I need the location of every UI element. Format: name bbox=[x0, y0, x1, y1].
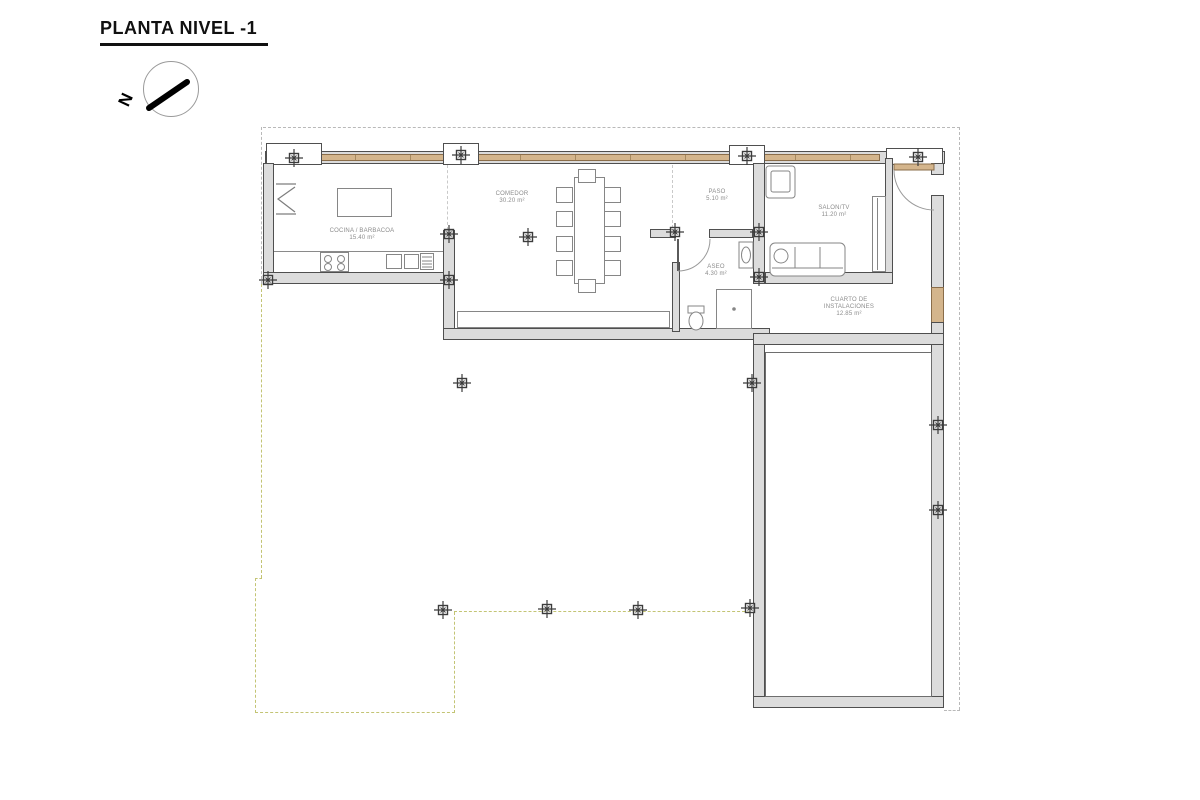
dining-table bbox=[574, 177, 605, 284]
wall-right-upper bbox=[931, 195, 944, 288]
sink bbox=[386, 254, 402, 269]
wall-right-stub bbox=[931, 163, 944, 175]
column-marker bbox=[434, 601, 452, 619]
toilet bbox=[688, 306, 704, 330]
wall-kitchen-comedor bbox=[443, 230, 455, 340]
wing-interior bbox=[765, 352, 932, 697]
kitchen-island bbox=[337, 188, 392, 217]
dining-chair bbox=[604, 187, 621, 203]
room-boundary-dashed bbox=[672, 165, 673, 228]
shower bbox=[716, 289, 752, 329]
dining-chair bbox=[556, 260, 573, 276]
north-letter: N bbox=[114, 90, 137, 110]
wall-paso-salon bbox=[753, 163, 765, 284]
column-marker bbox=[519, 228, 537, 246]
column-marker bbox=[453, 374, 471, 392]
pillar-box bbox=[266, 143, 322, 165]
dining-chair bbox=[604, 260, 621, 276]
bench bbox=[457, 311, 670, 328]
terrace-boundary-dashed bbox=[255, 578, 256, 713]
floor-plan-sheet: PLANTA NIVEL -1 N bbox=[0, 0, 1200, 800]
wall-left bbox=[263, 163, 274, 284]
room-label-cuarto: CUARTO DE INSTALACIONES 12.85 m² bbox=[789, 297, 909, 318]
terrace-boundary-dashed bbox=[255, 712, 455, 713]
door-right-wall bbox=[931, 287, 944, 323]
terrace-boundary-dashed bbox=[454, 612, 455, 713]
dining-chair bbox=[556, 211, 573, 227]
sink bbox=[404, 254, 419, 269]
room-label-paso: PASO 5.10 m² bbox=[677, 189, 757, 203]
north-indicator bbox=[143, 61, 199, 117]
room-label-cocina: COCINA / BARBACOA 15.40 m² bbox=[302, 228, 422, 242]
drainer-grill bbox=[420, 253, 434, 270]
drawing-overlay bbox=[0, 0, 1200, 800]
terrace-boundary-dashed bbox=[454, 611, 750, 612]
column-marker bbox=[538, 600, 556, 618]
wall-wing-left bbox=[753, 344, 765, 708]
terrace-boundary-dashed bbox=[255, 578, 262, 579]
wall-right-lower bbox=[931, 322, 944, 708]
dining-chair bbox=[604, 236, 621, 252]
window-band-top bbox=[300, 154, 880, 161]
wall-aseo-top-right bbox=[709, 229, 753, 238]
page-title: PLANTA NIVEL -1 bbox=[100, 18, 268, 46]
roof-overhang-dashed bbox=[261, 127, 262, 284]
dining-chair bbox=[578, 279, 596, 293]
room-label-aseo: ASEO 4.30 m² bbox=[686, 264, 746, 278]
armchair bbox=[766, 166, 795, 198]
kitchen-counter-edge bbox=[274, 251, 443, 252]
room-label-comedor: COMEDOR 30.20 m² bbox=[452, 191, 572, 205]
column-marker bbox=[629, 601, 647, 619]
terrace-boundary-dashed bbox=[261, 284, 262, 578]
dining-chair bbox=[578, 169, 596, 183]
barbecue-chevron bbox=[276, 184, 296, 214]
wall-comedor-bottom bbox=[443, 328, 770, 340]
room-label-salon: SALON/TV 11.20 m² bbox=[774, 205, 894, 219]
wall-aseo-top-left bbox=[650, 229, 676, 238]
roof-overhang-dashed bbox=[959, 127, 960, 710]
roof-overhang-dashed bbox=[944, 710, 960, 711]
wall-salon-bottom bbox=[765, 272, 893, 284]
roof-overhang-dashed bbox=[263, 127, 960, 128]
wall-kitchen-bottom bbox=[263, 272, 455, 284]
door-arc-entry bbox=[894, 164, 934, 210]
stove bbox=[320, 252, 349, 272]
pillar-box bbox=[443, 143, 479, 165]
wall-aseo-left bbox=[672, 262, 680, 332]
pillar-box bbox=[729, 145, 765, 165]
dining-chair bbox=[556, 236, 573, 252]
wall-wing-bottom bbox=[753, 696, 944, 708]
dining-chair bbox=[604, 211, 621, 227]
room-boundary-dashed bbox=[447, 165, 448, 230]
wall-cuarto-bottom bbox=[753, 333, 944, 345]
